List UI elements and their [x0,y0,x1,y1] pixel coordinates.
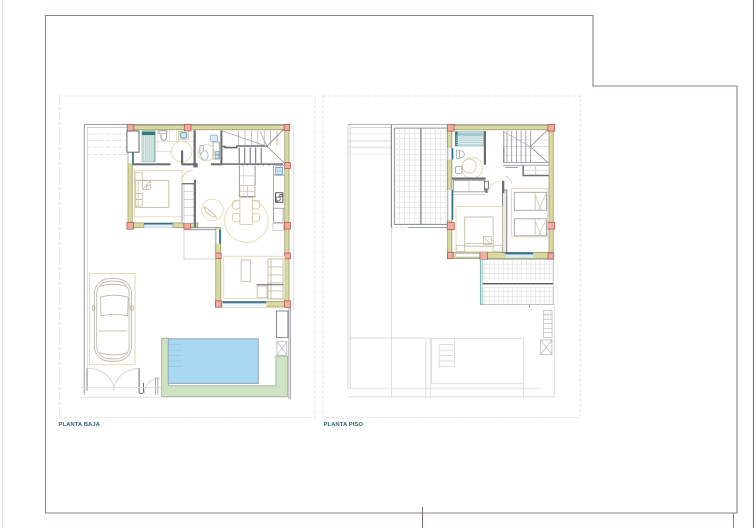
svg-text:PLANTA BAJA: PLANTA BAJA [59,422,101,428]
svg-text:PLANTA PISO: PLANTA PISO [324,422,364,428]
